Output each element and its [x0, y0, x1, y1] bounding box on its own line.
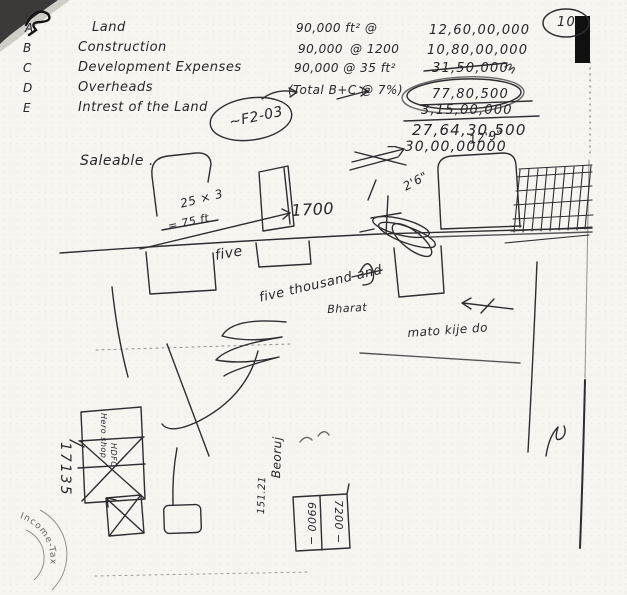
rotated-beoruj: Beoruj — [270, 436, 283, 478]
page-number: 10 — [557, 16, 576, 29]
cell-label-hdfc: HDFC — [109, 443, 117, 467]
qty-development: 90,000 @ 35 ft² — [294, 62, 396, 74]
box-number-6900: 6900 − — [306, 502, 317, 546]
zigzag-squiggle — [216, 321, 286, 376]
rate-construction: @ 1200 — [350, 43, 399, 55]
corner-fold — [0, 0, 70, 52]
amount-land: 12,60,00,000 — [429, 24, 530, 37]
amount-overheads: 77,80,500 — [432, 88, 509, 101]
small-plot-box — [259, 166, 294, 231]
row-letter-c: C — [23, 62, 32, 74]
small-pillar-box — [164, 504, 202, 533]
building-box — [438, 153, 520, 229]
item-overheads: Overheads — [78, 81, 153, 94]
item-land: Land — [92, 21, 126, 34]
amount-interest: 3,15,00,000 — [421, 104, 513, 117]
row-letter-a: A — [25, 22, 34, 34]
qty-land: 90,000 ft² @ — [296, 22, 377, 34]
amount-construction: 10,80,00,000 — [427, 44, 528, 57]
scan-artifact-bar — [575, 16, 590, 63]
rotated-151-21: 151.21 — [257, 476, 268, 514]
amount-development: 31,50,000 — [432, 62, 509, 75]
row-letter-b: B — [23, 42, 32, 54]
cell-label-hero-shop: Hero shop — [99, 413, 107, 458]
item-intrest-of-land: Intrest of the Land — [78, 101, 208, 114]
stamp-text: Income-Tax — [19, 511, 58, 565]
scanned-handwritten-page: Income-Tax 10 A B C D E Land Constructio… — [0, 0, 627, 595]
n-squiggle — [546, 426, 565, 456]
row-letter-e: E — [23, 102, 31, 114]
qty-construction: 90,000 — [298, 43, 343, 55]
value-1700: 1700 — [291, 201, 334, 219]
box-number-7200: 7200 − — [333, 500, 344, 544]
svg-text:Income-Tax: Income-Tax — [19, 511, 58, 565]
item-development-expenses: Development Expenses — [78, 61, 242, 74]
note-bharat: Bharat — [327, 302, 367, 315]
row-letter-d: D — [23, 82, 33, 94]
qty-overheads: (Total B+C @ 7%) — [288, 84, 403, 96]
item-construction: Construction — [78, 41, 167, 54]
rotated-17135: 17135 — [58, 442, 72, 497]
saleable-label: Saleable . — [80, 154, 154, 168]
